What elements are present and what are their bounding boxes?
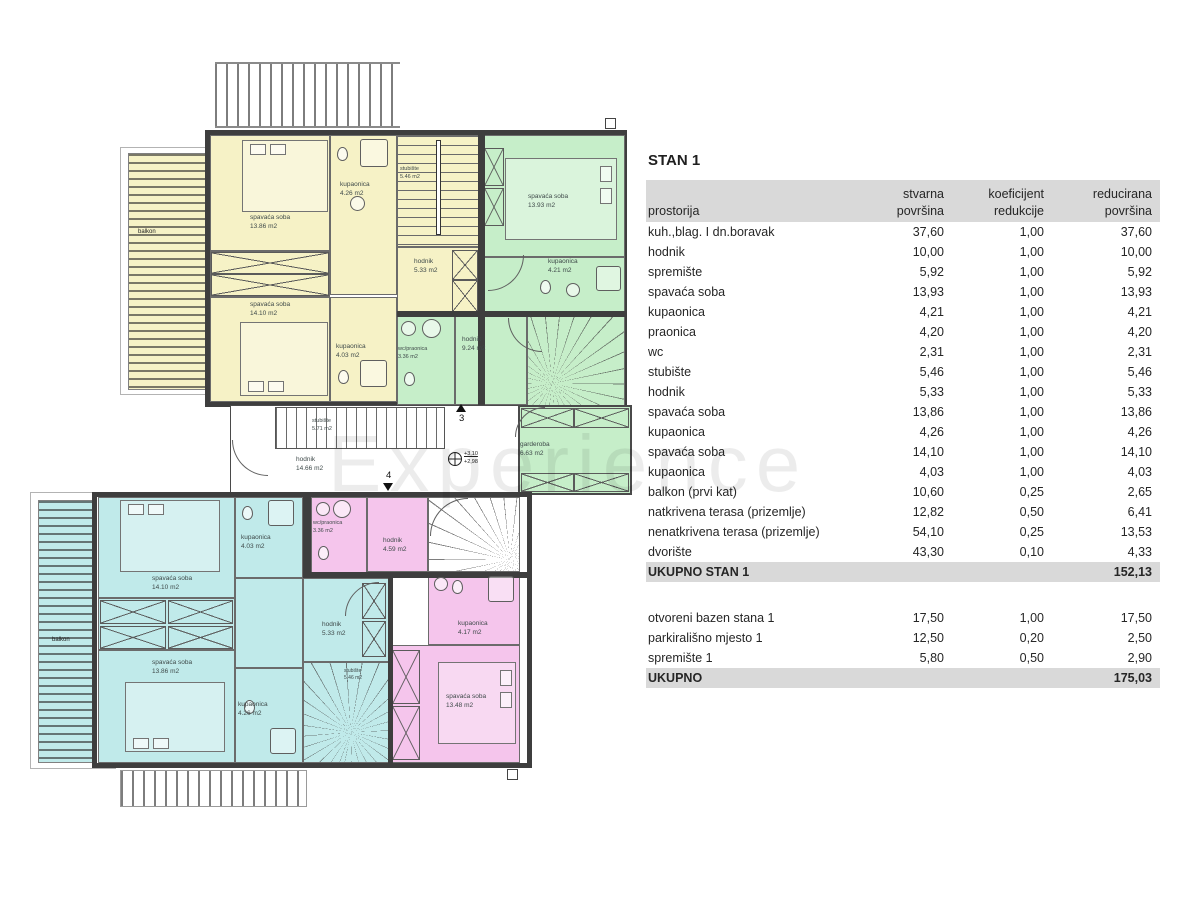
pillow [148,504,164,515]
cell-room: hodnik [646,245,846,259]
cell-actual-area: 2,31 [846,345,952,359]
closet-x [392,706,420,760]
cell-coefficient: 1,00 [952,465,1052,479]
room-label: hodnik5.33 m2 [414,257,438,276]
cell-coefficient: 1,00 [952,425,1052,439]
cell-actual-area: 12,82 [846,505,952,519]
room-label: spavaća soba13.86 m2 [250,213,290,232]
table-row: kuh.,blag. I dn.boravak 37,60 1,00 37,60 [646,222,1160,242]
cell-actual-area: 10,60 [846,485,952,499]
cell-actual-area: 4,21 [846,305,952,319]
cell-reduced-area: 4,03 [1052,465,1160,479]
cell-room: balkon (prvi kat) [646,485,846,499]
cell-actual-area: 5,80 [846,651,952,665]
closet-x [452,280,478,312]
cell-reduced-area: 4,33 [1052,545,1160,559]
cell-coefficient: 1,00 [952,245,1052,259]
toilet [540,280,551,294]
table-extra-body: otvoreni bazen stana 1 17,50 1,00 17,50 … [646,608,1160,668]
cell-coefficient: 1,00 [952,305,1052,319]
cell-actual-area: 37,60 [846,225,952,239]
cell-coefficient: 1,00 [952,445,1052,459]
cell-room: parkirališno mjesto 1 [646,631,846,645]
subtotal-label: UKUPNO STAN 1 [646,565,846,579]
room-label: kupaonica4.26 m2 [340,180,370,199]
closet-x [362,621,386,657]
pillow [600,166,612,182]
shower [596,266,621,291]
table-row: otvoreni bazen stana 1 17,50 1,00 17,50 [646,608,1160,628]
toilet [452,580,463,594]
table-row: balkon (prvi kat) 10,60 0,25 2,65 [646,482,1160,502]
cell-coefficient: 0,20 [952,631,1052,645]
room-label: wc/praonica3.36 m2 [313,520,342,536]
stairs-middle [275,407,445,449]
area-table: STAN 1 prostorija stvarnapovršina koefic… [646,152,1160,688]
table-gap [646,582,1160,608]
room-label: spavaća soba13.48 m2 [446,692,486,711]
cell-room: stubište [646,365,846,379]
cell-reduced-area: 17,50 [1052,611,1160,625]
table-header: prostorija stvarnapovršina koeficijentre… [646,180,1160,222]
room-label: hodnik4.59 m2 [383,536,407,555]
table-row: parkirališno mjesto 1 12,50 0,20 2,50 [646,628,1160,648]
room-label: garderoba6.63 m2 [520,440,550,459]
table-row: kupaonica 4,21 1,00 4,21 [646,302,1160,322]
cell-room: wc [646,345,846,359]
room-label: stubište5.46 m2 [344,668,362,683]
toilet [338,370,349,384]
room-connector-cyan [235,578,303,668]
shower [268,500,294,526]
cell-actual-area: 5,46 [846,365,952,379]
wardrobe-x [168,626,233,649]
header-stvarna-povrsina: stvarnapovršina [846,186,952,220]
room-label: spavaća soba14.10 m2 [152,574,192,593]
cell-room: spavaća soba [646,285,846,299]
page-title: STAN 1 [648,152,1160,169]
pillow [500,670,512,686]
cell-actual-area: 14,10 [846,445,952,459]
table-row: hodnik 10,00 1,00 10,00 [646,242,1160,262]
room-label: hodnik14.66 m2 [296,455,323,474]
toilet [318,546,329,560]
cell-room: otvoreni bazen stana 1 [646,611,846,625]
closet-x [574,473,629,492]
cell-actual-area: 5,92 [846,265,952,279]
cell-coefficient: 0,50 [952,651,1052,665]
cell-actual-area: 10,00 [846,245,952,259]
cell-reduced-area: 4,21 [1052,305,1160,319]
table-row: wc 2,31 1,00 2,31 [646,342,1160,362]
cell-reduced-area: 37,60 [1052,225,1160,239]
cell-actual-area: 4,20 [846,325,952,339]
cell-actual-area: 13,93 [846,285,952,299]
pillow [500,692,512,708]
cell-coefficient: 1,00 [952,325,1052,339]
cell-room: spavaća soba [646,405,846,419]
cell-room: natkrivena terasa (prizemlje) [646,505,846,519]
room-label: spavaća soba13.93 m2 [528,192,568,211]
wall-marker [605,118,616,129]
total-value: 175,03 [1052,671,1160,685]
cell-room: nenatkrivena terasa (prizemlje) [646,525,846,539]
cell-coefficient: 1,00 [952,345,1052,359]
table-row: spremište 1 5,80 0,50 2,90 [646,648,1160,668]
shower [360,139,388,167]
cell-actual-area: 4,26 [846,425,952,439]
room-label: stubište5.71 m2 [312,418,332,434]
table-row: spavaća soba 14,10 1,00 14,10 [646,442,1160,462]
pillow [153,738,169,749]
header-reducirana-povrsina: reduciranapovršina [1052,186,1160,220]
cell-room: kupaonica [646,425,846,439]
cell-coefficient: 0,25 [952,525,1052,539]
cell-room: hodnik [646,385,846,399]
toilet [337,147,348,161]
cell-coefficient: 1,00 [952,265,1052,279]
cell-coefficient: 1,00 [952,611,1052,625]
section-marker-4-icon [383,483,393,491]
stairs-spine [436,140,441,235]
cell-reduced-area: 10,00 [1052,245,1160,259]
cell-room: spremište 1 [646,651,846,665]
cell-actual-area: 54,10 [846,525,952,539]
pillow [250,144,266,155]
cell-reduced-area: 14,10 [1052,445,1160,459]
table-row: kupaonica 4,26 1,00 4,26 [646,422,1160,442]
pillow [248,381,264,392]
cell-room: kupaonica [646,305,846,319]
room-label: stubište5.46 m2 [400,166,420,182]
cell-room: spremište [646,265,846,279]
pillow [133,738,149,749]
closet-x [452,250,478,280]
total-label: UKUPNO [646,671,846,685]
elevation-values: +3,10 +2,98 [464,450,478,467]
cell-actual-area: 43,30 [846,545,952,559]
wardrobe-x [100,600,166,624]
cell-reduced-area: 2,31 [1052,345,1160,359]
cell-room: kuh.,blag. I dn.boravak [646,225,846,239]
table-row: praonica 4,20 1,00 4,20 [646,322,1160,342]
cell-reduced-area: 2,65 [1052,485,1160,499]
section-marker-3-icon [456,404,466,412]
floor-plan-sheet: 3 4 +3,10 +2,98 spavaća soba13.86 m2 kup… [0,0,1200,900]
washer [401,321,416,336]
floor-plan: 3 4 +3,10 +2,98 spavaća soba13.86 m2 kup… [0,0,650,900]
cell-reduced-area: 13,86 [1052,405,1160,419]
shower [488,576,514,602]
cell-coefficient: 1,00 [952,405,1052,419]
section-marker-4: 4 [386,470,391,481]
header-prostorija: prostorija [646,203,846,220]
table-row: spavaća soba 13,86 1,00 13,86 [646,402,1160,422]
closet-x [484,148,504,186]
table-row: stubište 5,46 1,00 5,46 [646,362,1160,382]
closet-x [521,473,574,492]
room-hall-pink [367,497,428,572]
cell-reduced-area: 5,46 [1052,365,1160,379]
pillow [600,188,612,204]
cell-reduced-area: 13,53 [1052,525,1160,539]
pergola-top [215,62,400,128]
room-label: kupaonica4.21 m2 [548,257,578,276]
shower [360,360,387,387]
table-row: spavaća soba 13,93 1,00 13,93 [646,282,1160,302]
toilet [242,506,253,520]
room-label: kupaonica4.03 m2 [241,533,271,552]
cell-coefficient: 1,00 [952,385,1052,399]
cell-room: kupaonica [646,465,846,479]
table-row: dvorište 43,30 0,10 4,33 [646,542,1160,562]
balcony-label-bottom: balkon [52,636,70,645]
elevation-marker-icon [448,452,462,466]
cell-actual-area: 12,50 [846,631,952,645]
wall [388,578,393,763]
pillow [268,381,284,392]
cell-room: dvorište [646,545,846,559]
cell-reduced-area: 6,41 [1052,505,1160,519]
balcony-label-top: balkon [138,228,156,237]
cell-reduced-area: 2,90 [1052,651,1160,665]
cell-actual-area: 17,50 [846,611,952,625]
elevation-lower: +2,98 [464,459,478,465]
table-row: natkrivena terasa (prizemlje) 12,82 0,50… [646,502,1160,522]
cell-room: praonica [646,325,846,339]
cell-reduced-area: 4,20 [1052,325,1160,339]
wall [397,311,627,317]
room-label: spavaća soba13.86 m2 [152,658,192,677]
room-label: wc/praonica3.36 m2 [398,346,427,362]
sink [434,577,448,591]
pillow [270,144,286,155]
table-row: kupaonica 4,03 1,00 4,03 [646,462,1160,482]
elevation-upper: +3,10 [464,450,478,458]
washer [422,319,441,338]
closet-x [574,408,629,428]
closet-x [392,650,420,704]
cell-coefficient: 0,10 [952,545,1052,559]
closet-x [484,188,504,226]
room-label: kupaonica4.17 m2 [458,619,488,638]
wall-marker [507,769,518,780]
table-row: spremište 5,92 1,00 5,92 [646,262,1160,282]
toilet [404,372,415,386]
wall [478,130,485,407]
cell-actual-area: 4,03 [846,465,952,479]
cell-actual-area: 13,86 [846,405,952,419]
cell-reduced-area: 4,26 [1052,425,1160,439]
table-row: nenatkrivena terasa (prizemlje) 54,10 0,… [646,522,1160,542]
room-label: hodnik9.24 m2 [462,335,486,354]
wardrobe-x [211,274,329,296]
wardrobe-x [211,252,329,274]
room-label: hodnik5.33 m2 [322,620,346,639]
cell-coefficient: 0,50 [952,505,1052,519]
cell-reduced-area: 5,33 [1052,385,1160,399]
subtotal-row: UKUPNO STAN 1 152,13 [646,562,1160,582]
cell-coefficient: 1,00 [952,225,1052,239]
cell-coefficient: 1,00 [952,285,1052,299]
section-marker-3: 3 [459,413,464,424]
pillow [128,504,144,515]
cell-actual-area: 5,33 [846,385,952,399]
table-body: kuh.,blag. I dn.boravak 37,60 1,00 37,60… [646,222,1160,562]
wardrobe-x [100,626,166,649]
cell-room: spavaća soba [646,445,846,459]
subtotal-value: 152,13 [1052,565,1160,579]
cell-reduced-area: 5,92 [1052,265,1160,279]
cell-reduced-area: 2,50 [1052,631,1160,645]
cell-coefficient: 1,00 [952,365,1052,379]
washer [333,500,351,518]
room-label: kupaonica4.26 m2 [238,700,268,719]
shower [270,728,296,754]
balcony-top [128,153,207,390]
wardrobe-x [168,600,233,624]
cell-reduced-area: 13,93 [1052,285,1160,299]
table-row: hodnik 5,33 1,00 5,33 [646,382,1160,402]
header-koeficijent-redukcije: koeficijentredukcije [952,186,1052,220]
pergola-bottom [120,770,307,807]
room-label: kupaonica4.03 m2 [336,342,366,361]
sink [566,283,580,297]
washer [316,502,330,516]
room-label: spavaća soba14.10 m2 [250,300,290,319]
cell-coefficient: 0,25 [952,485,1052,499]
wall [303,492,311,578]
total-row: UKUPNO 175,03 [646,668,1160,688]
